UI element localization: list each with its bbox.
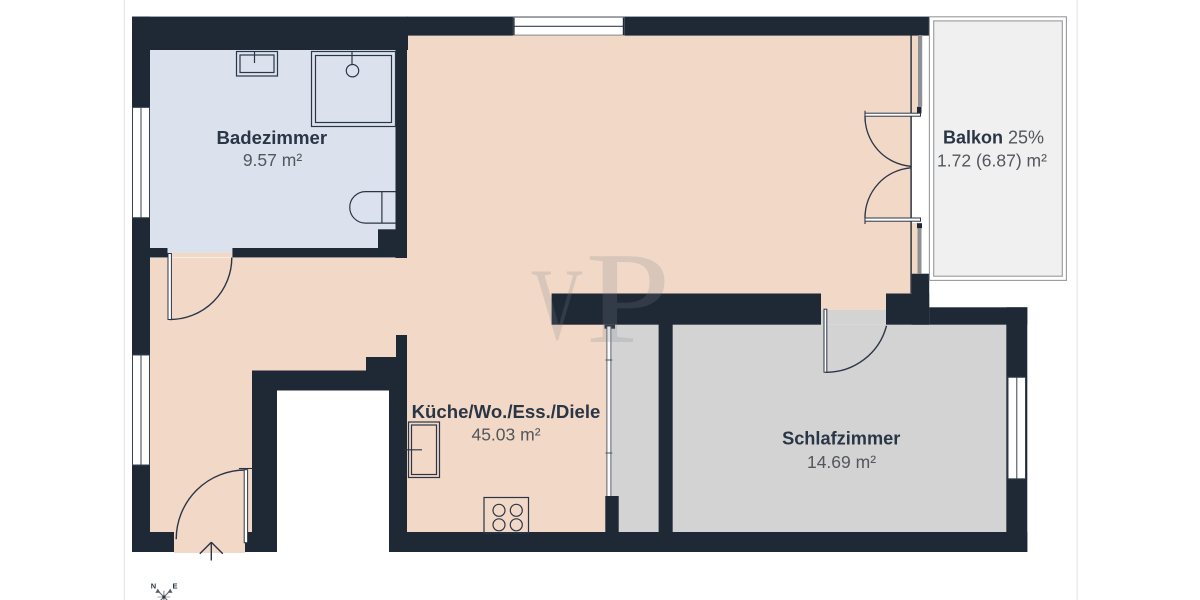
svg-text:Küche/Wo./Ess./Diele: Küche/Wo./Ess./Diele <box>412 401 601 422</box>
svg-text:9.57 m²: 9.57 m² <box>243 150 302 170</box>
svg-text:1.72 (6.87) m²: 1.72 (6.87) m² <box>937 151 1047 171</box>
svg-text:P: P <box>585 225 670 370</box>
svg-text:V: V <box>531 249 583 363</box>
svg-text:Schlafzimmer: Schlafzimmer <box>782 429 900 449</box>
svg-text:N: N <box>151 582 156 591</box>
svg-text:14.69 m²: 14.69 m² <box>807 452 876 472</box>
svg-text:45.03 m²: 45.03 m² <box>471 425 540 445</box>
svg-text:E: E <box>172 581 177 590</box>
svg-text:Balkon 25%: Balkon 25% <box>943 128 1044 148</box>
svg-text:Badezimmer: Badezimmer <box>217 127 328 148</box>
